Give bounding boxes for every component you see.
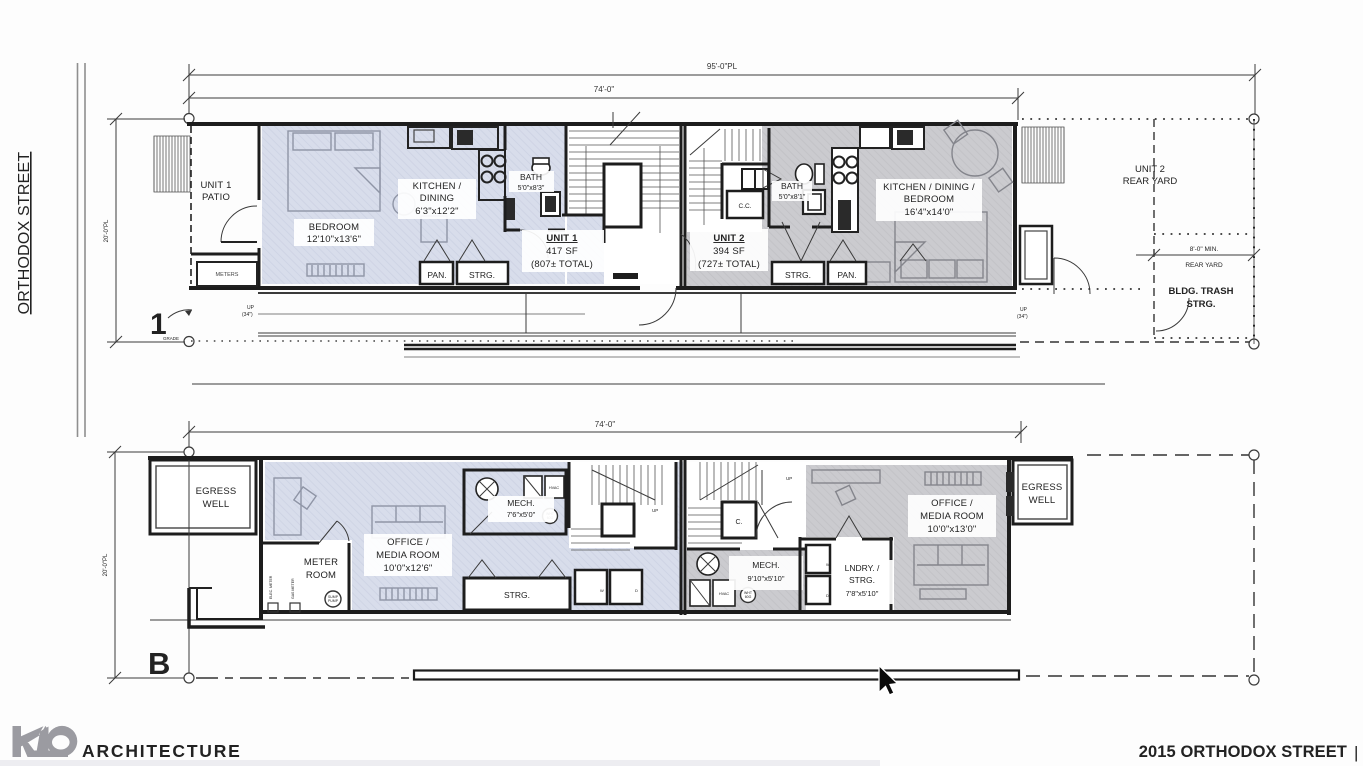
svg-text:EGRESS: EGRESS: [1022, 482, 1063, 493]
svg-text:STRG.: STRG.: [1186, 299, 1215, 310]
svg-text:EGRESS: EGRESS: [196, 486, 237, 497]
svg-text:STRG.: STRG.: [849, 575, 875, 585]
svg-text:LNDRY. /: LNDRY. /: [845, 563, 880, 573]
svg-text:MEDIA ROOM: MEDIA ROOM: [920, 511, 984, 522]
svg-text:MECH.: MECH.: [507, 498, 534, 508]
svg-text:UP: UP: [247, 305, 255, 311]
svg-text:UP: UP: [1020, 307, 1028, 313]
svg-text:20'-0"PL: 20'-0"PL: [103, 553, 109, 576]
svg-text:7'6"x5'0": 7'6"x5'0": [507, 510, 536, 519]
svg-text:BEDROOM: BEDROOM: [904, 194, 955, 205]
svg-text:74'-0": 74'-0": [595, 420, 616, 429]
svg-text:REAR YARD: REAR YARD: [1185, 262, 1223, 269]
svg-text:BATH: BATH: [520, 172, 542, 182]
svg-text:(34"): (34"): [242, 312, 253, 318]
svg-text:B: B: [148, 646, 170, 681]
svg-text:60G: 60G: [745, 595, 752, 599]
svg-text:10'0"x12'6": 10'0"x12'6": [383, 563, 432, 574]
svg-text:ORTHODOX STREET: ORTHODOX STREET: [16, 152, 33, 315]
svg-text:METERS: METERS: [216, 272, 239, 278]
svg-text:ELEC. METER: ELEC. METER: [269, 575, 273, 599]
svg-text:WELL: WELL: [1029, 495, 1056, 506]
svg-text:PAN.: PAN.: [427, 270, 446, 280]
svg-text:OFFICE /: OFFICE /: [931, 498, 973, 509]
svg-text:(34"): (34"): [1017, 314, 1028, 320]
svg-text:PATIO: PATIO: [202, 192, 230, 203]
svg-text:KITCHEN / DINING /: KITCHEN / DINING /: [883, 182, 975, 193]
svg-text:8'-0" MIN.: 8'-0" MIN.: [1190, 246, 1219, 253]
svg-text:OFFICE /: OFFICE /: [387, 537, 429, 548]
svg-text:9'10"x5'10": 9'10"x5'10": [748, 574, 785, 583]
svg-text:16'4"x14'0": 16'4"x14'0": [904, 207, 953, 218]
svg-text:2015 ORTHODOX STREET: 2015 ORTHODOX STREET: [1139, 743, 1347, 761]
svg-text:GAS METER: GAS METER: [291, 578, 295, 599]
svg-text:C.: C.: [736, 519, 743, 526]
svg-text:HVAC: HVAC: [549, 486, 560, 490]
svg-text:UNIT 2: UNIT 2: [1135, 164, 1165, 175]
svg-text:12'10"x13'6": 12'10"x13'6": [307, 234, 362, 245]
svg-text:ARCHITECTURE: ARCHITECTURE: [82, 741, 242, 761]
svg-text:394 SF: 394 SF: [713, 246, 745, 257]
svg-text:STRG.: STRG.: [785, 270, 811, 280]
svg-text:WELL: WELL: [203, 499, 230, 510]
svg-text:5'0"x8'3": 5'0"x8'3": [518, 185, 545, 192]
svg-text:74'-0": 74'-0": [594, 85, 615, 94]
svg-text:MECH.: MECH.: [752, 560, 779, 570]
svg-text:W: W: [600, 588, 604, 593]
svg-text:PUMP: PUMP: [328, 599, 339, 603]
svg-text:BLDG. TRASH: BLDG. TRASH: [1169, 286, 1234, 297]
svg-text:UNIT 1: UNIT 1: [546, 233, 578, 244]
svg-text:(727± TOTAL): (727± TOTAL): [698, 259, 760, 270]
svg-text:STRG.: STRG.: [469, 270, 495, 280]
svg-text:UP: UP: [652, 508, 658, 513]
svg-text:(807± TOTAL): (807± TOTAL): [531, 259, 593, 270]
svg-text:D: D: [826, 593, 829, 598]
svg-text:20'-0"PL: 20'-0"PL: [104, 219, 110, 242]
svg-text:95'-0"PL: 95'-0"PL: [707, 62, 738, 71]
svg-text:REAR YARD: REAR YARD: [1123, 176, 1178, 187]
svg-text:HVAC: HVAC: [719, 592, 730, 596]
svg-text:DINING: DINING: [420, 193, 454, 204]
svg-text:UNIT 1: UNIT 1: [200, 180, 231, 191]
svg-text:KITCHEN /: KITCHEN /: [413, 181, 462, 192]
svg-text:W: W: [826, 562, 830, 567]
svg-text:GRADE: GRADE: [163, 336, 179, 341]
svg-text:STRG.: STRG.: [504, 590, 530, 600]
svg-text:5'0"x8'1": 5'0"x8'1": [779, 194, 806, 201]
svg-text:UNIT 2: UNIT 2: [713, 233, 744, 244]
svg-text:417 SF: 417 SF: [546, 246, 578, 257]
svg-text:BEDROOM: BEDROOM: [309, 222, 360, 233]
svg-text:ROOM: ROOM: [306, 570, 336, 581]
svg-text:6'3"x12'2": 6'3"x12'2": [415, 206, 459, 217]
svg-text:7'8"x5'10": 7'8"x5'10": [846, 589, 879, 598]
svg-text:BATH: BATH: [781, 181, 803, 191]
svg-text:D: D: [635, 588, 638, 593]
svg-text:UP: UP: [786, 476, 792, 481]
svg-text:METER: METER: [304, 557, 338, 568]
svg-text:MEDIA ROOM: MEDIA ROOM: [376, 550, 440, 561]
svg-text:C.C.: C.C.: [739, 203, 752, 210]
svg-text:|: |: [1354, 743, 1358, 762]
svg-text:PAN.: PAN.: [837, 270, 856, 280]
svg-text:10'0"x13'0": 10'0"x13'0": [927, 524, 976, 535]
